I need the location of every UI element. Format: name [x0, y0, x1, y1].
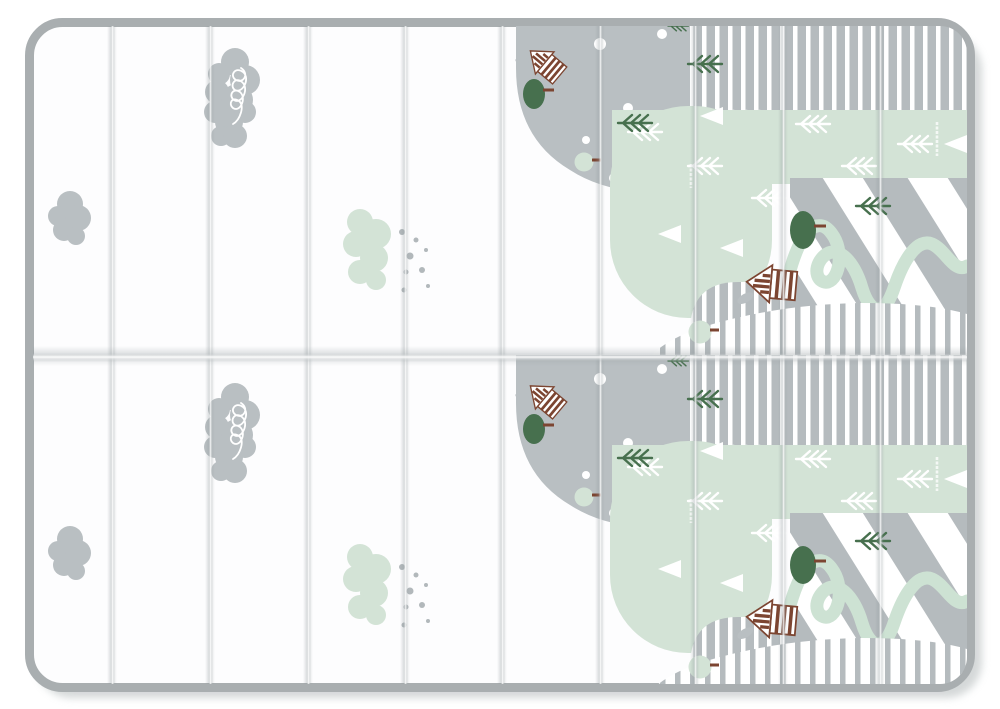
play-mat-product-photo [0, 0, 1000, 709]
play-mat [0, 0, 1000, 709]
center-fold [33, 346, 967, 366]
